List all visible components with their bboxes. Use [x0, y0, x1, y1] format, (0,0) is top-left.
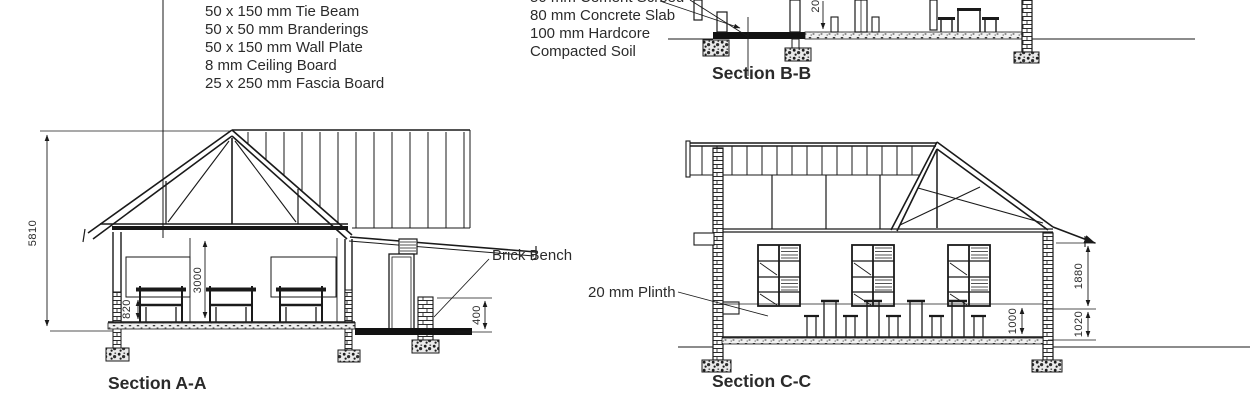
dim-roof-height: 1880: [1073, 263, 1085, 289]
roof-callout-list: 50 x 150 mm Tie Beam 50 x 50 mm Branderi…: [205, 3, 384, 93]
callout-line: 25 x 250 mm Fascia Board: [205, 75, 384, 93]
callout-line: 50 x 50 mm Branderings: [205, 21, 384, 39]
callout-line: 50 x 150 mm Tie Beam: [205, 3, 384, 21]
section-c-title: Section C-C: [712, 371, 811, 392]
section-a-a-drawing: [40, 130, 536, 362]
architectural-drawing: [0, 0, 1250, 417]
callout-line: 80 mm Concrete Slab: [530, 7, 684, 25]
dim-sill-height: 820: [121, 299, 133, 319]
callout-line: 50 mm Cement Screed: [530, 0, 684, 7]
callout-line: 100 mm Hardcore: [530, 25, 684, 43]
section-a-title: Section A-A: [108, 373, 207, 394]
floor-callout-list: 50 mm Cement Screed 80 mm Concrete Slab …: [530, 0, 684, 61]
dim-ceiling-height: 3000: [192, 267, 204, 293]
brick-bench-label: Brick Bench: [492, 247, 572, 264]
plinth-label: 20 mm Plinth: [588, 284, 676, 301]
section-c-c-drawing: [678, 141, 1250, 372]
section-b-title: Section B-B: [712, 63, 811, 84]
dim-lower-wall: 1020: [1073, 311, 1085, 337]
dim-bench-height: 400: [471, 305, 483, 325]
dim-interior: 1000: [1007, 308, 1019, 334]
callout-line: Compacted Soil: [530, 43, 684, 61]
dim-total-height: 5810: [27, 220, 39, 246]
callout-line: 8 mm Ceiling Board: [205, 57, 384, 75]
dim-partial-b: 20: [810, 0, 822, 13]
architectural-sheet: 50 x 150 mm Tie Beam 50 x 50 mm Branderi…: [0, 0, 1250, 417]
callout-line: 50 x 150 mm Wall Plate: [205, 39, 384, 57]
